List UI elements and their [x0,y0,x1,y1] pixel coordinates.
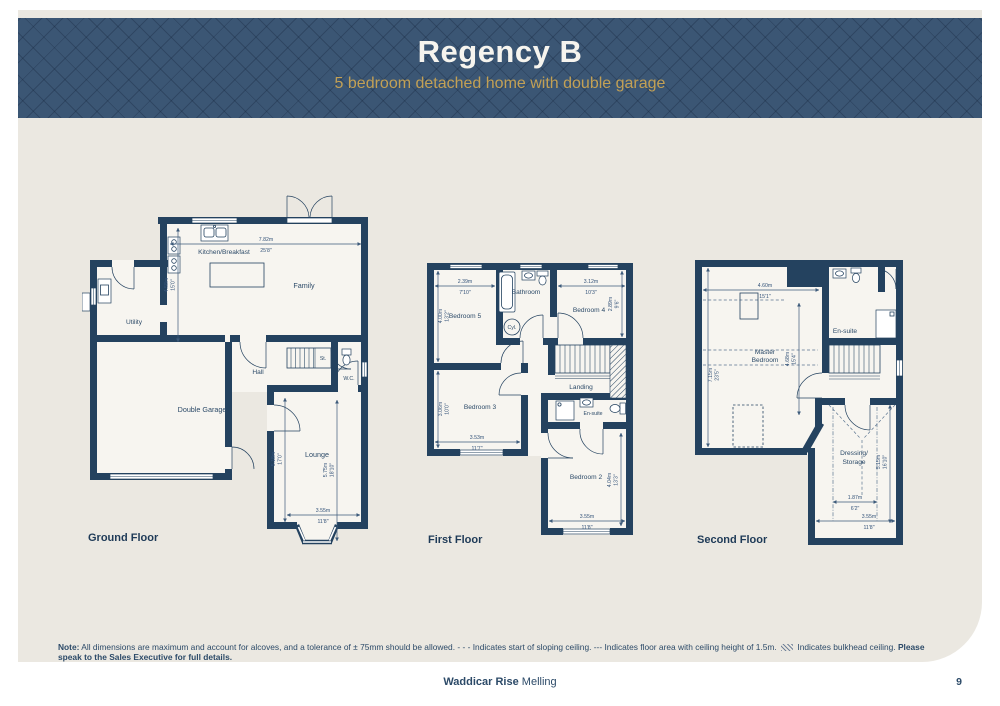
note-bulkhead: Indicates bulkhead ceiling. [797,642,895,652]
svg-text:3.12m: 3.12m [584,279,598,285]
svg-text:3.55m: 3.55m [580,514,594,520]
floor-title-ground: Ground Floor [88,532,159,544]
development-location: Melling [522,676,557,688]
dim-ground-depth-m: 4.58m [164,278,170,292]
svg-text:13'3": 13'3" [614,474,620,486]
room-label-kitchen: Kitchen/Breakfast [198,249,250,256]
svg-text:7'10": 7'10" [459,290,471,296]
ensuite2-toilet [851,268,861,273]
svg-text:11'8": 11'8" [863,525,874,531]
svg-text:1.87m: 1.87m [848,495,862,501]
svg-text:10'0": 10'0" [445,403,451,415]
svg-text:2.89m: 2.89m [608,297,614,311]
svg-text:4.00m: 4.00m [438,309,444,323]
svg-text:11'8": 11'8" [317,519,328,525]
floor-title-second: Second Floor [697,534,768,546]
second-floor-windows [897,360,903,376]
svg-text:16'10": 16'10" [883,455,889,470]
room-label-bedroom4: Bedroom 4 [573,307,606,314]
dim-ground-width-ft: 25'8" [260,248,272,254]
bathroom-toilet [537,271,548,276]
svg-text:23'5": 23'5" [715,369,721,381]
page-number: 9 [956,676,962,688]
svg-text:7.15m: 7.15m [708,368,714,382]
room-label-store: St. [320,356,326,362]
plot-title: Regency B [18,18,982,70]
room-label-garage: Double Garage [178,405,227,414]
svg-text:3.55m: 3.55m [316,508,330,514]
bathroom-sink [522,271,535,280]
ensuite-toilet [620,403,626,414]
dim-ground-width-m: 7.82m [259,237,273,243]
plot-subtitle: 5 bedroom detached home with double gara… [18,75,982,93]
svg-text:17'0": 17'0" [278,453,284,465]
first-floor-plan: 2.39m 7'10" 4.00m 13'2" 3.12m 10'3" 2.89… [425,255,640,547]
svg-text:18'10": 18'10" [330,463,336,478]
content-card: Regency B 5 bedroom detached home with d… [18,10,982,662]
svg-text:4.60m: 4.60m [758,283,772,289]
development-name: Waddicar Rise [443,676,518,688]
svg-text:4.04m: 4.04m [607,473,613,487]
svg-text:5.15m: 5.15m [876,455,882,469]
svg-text:11'7": 11'7" [471,446,482,452]
ensuite2-shower [876,310,896,338]
room-label-master-2: Bedroom [752,357,779,364]
floor-title-first: First Floor [428,534,483,546]
room-label-utility: Utility [126,319,143,326]
utility-sink [98,279,111,303]
room-label-cyl: Cyl. [508,325,517,331]
svg-text:10'3": 10'3" [585,290,597,296]
bulkhead-hatch-icon [781,644,793,651]
room-label-bathroom: Bathroom [512,289,541,296]
svg-text:3.53m: 3.53m [470,435,484,441]
svg-text:2.39m: 2.39m [458,279,472,285]
brochure-page: Regency B 5 bedroom detached home with d… [0,0,1000,706]
note-ceiling: --- Indicates floor area with ceiling he… [594,642,777,652]
ground-floor-plan: 7.82m 25'8" 4.58m 15'0" 5.18m 17'0" 5.75… [82,193,382,549]
room-label-dressing-1: Dressing/ [840,450,868,457]
room-label-family: Family [293,281,315,290]
room-label-lounge: Lounge [305,450,329,459]
note-label: Note: [58,642,79,652]
svg-text:6'2": 6'2" [851,506,860,512]
ensuite2-sink [833,269,846,278]
meter-box [82,293,90,311]
room-label-bedroom5: Bedroom 5 [449,313,482,320]
header-band: Regency B 5 bedroom detached home with d… [18,18,982,118]
note-sloping: - - - Indicates start of sloping ceiling… [457,642,591,652]
room-label-bedroom3: Bedroom 3 [464,404,497,411]
room-label-wc: W.C. [343,376,354,382]
note-text: All dimensions are maximum and account f… [81,642,455,652]
svg-text:5.75m: 5.75m [323,463,329,477]
wc-toilet [342,349,351,355]
svg-text:9'6": 9'6" [615,300,621,309]
room-label-landing: Landing [569,384,593,391]
room-label-ensuite: En-suite [583,411,602,417]
svg-text:11'8": 11'8" [581,525,592,531]
room-label-master-1: Master [755,349,776,356]
disclaimer-note: Note: All dimensions are maximum and acc… [58,642,938,662]
page-footer: Waddicar Rise Melling [0,676,1000,688]
second-floor-plan: 4.60m 15'1" 4.68m 15'4" 7.15m 23'5" 1.87… [693,255,910,550]
room-label-ensuite2: En-suite [833,328,858,335]
svg-text:3.55m: 3.55m [862,514,876,520]
room-label-hall: Hall [252,369,264,376]
svg-text:3.06m: 3.06m [438,402,444,416]
svg-text:5.18m: 5.18m [271,452,277,466]
room-label-dressing-2: Storage [842,459,865,466]
svg-text:15'4": 15'4" [792,353,798,365]
dim-ground-depth-ft: 15'0" [171,279,177,291]
svg-text:15'1": 15'1" [759,294,771,300]
room-label-bedroom2: Bedroom 2 [570,474,603,481]
svg-text:4.68m: 4.68m [785,352,791,366]
ensuite-shower [556,401,574,420]
ensuite-sink [580,398,593,407]
bulkhead-ceiling-area [610,345,626,398]
